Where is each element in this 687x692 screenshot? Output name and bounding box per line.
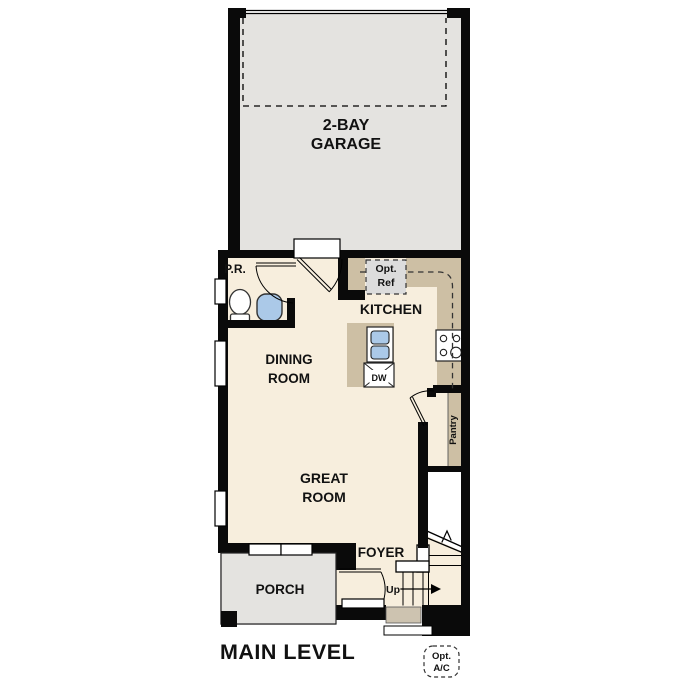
great-room-east-wall: [418, 422, 428, 548]
floor-plan-drawing: DW: [0, 0, 687, 687]
front-door-threshold: [342, 599, 384, 608]
kitchen-label: KITCHEN: [360, 301, 422, 317]
sink-basin-bottom-icon: [371, 346, 389, 359]
garage-door-niche: [294, 239, 340, 258]
kitchen-pantry-wall: [433, 385, 466, 393]
floor-plan-page: DW: [0, 0, 687, 687]
plan-title: MAIN LEVEL: [220, 640, 355, 664]
dishwasher-icon: DW: [364, 363, 394, 387]
pantry-label: Pantry: [448, 415, 459, 445]
opt-ac-label-line2: A/C: [433, 663, 450, 674]
drop-zone-cabinet: [348, 258, 365, 291]
entry-wall-horizontal: [338, 290, 365, 300]
stairs-up-label: Up: [386, 584, 400, 596]
opt-ref-label-line1: Opt.: [376, 263, 397, 275]
stair-rail-horizontal: [396, 561, 429, 572]
great-room-side-window: [215, 491, 226, 526]
great-room-label-line2: ROOM: [302, 489, 346, 505]
great-room-label-line1: GREAT: [300, 470, 348, 486]
front-stoop: [384, 626, 432, 635]
garage-bottom-wall: [218, 250, 470, 258]
great-room-front-window-1: [249, 544, 281, 555]
powder-room-bottom-wall: [218, 320, 295, 328]
opt-ac-unit: Opt. A/C: [424, 646, 459, 677]
great-room-front-window-2: [281, 544, 312, 555]
powder-room-window: [215, 279, 226, 304]
sink-basin-top-icon: [371, 331, 389, 344]
garage-top-left-jamb: [228, 8, 246, 18]
dining-window: [215, 341, 226, 386]
dishwasher-label: DW: [372, 373, 387, 383]
bathroom-sink-icon: [257, 294, 282, 321]
front-door-jamb-wall: [336, 543, 356, 570]
garage-left-wall: [228, 8, 240, 253]
pantry-door-jamb: [427, 388, 436, 397]
pantry-bottom-wall: [427, 466, 466, 472]
entry-step: [386, 607, 421, 623]
foyer-label: FOYER: [358, 545, 405, 560]
porch-post: [221, 611, 237, 627]
garage-label-line2: GARAGE: [311, 136, 382, 153]
opt-ref-label-line2: Ref: [378, 277, 395, 289]
cooktop-icon: [436, 330, 463, 361]
toilet-icon: [230, 290, 251, 315]
porch-label: PORCH: [256, 582, 305, 597]
garage-label-line1: 2-BAY: [323, 117, 370, 134]
right-wall: [461, 8, 470, 636]
powder-room-label: P.R.: [224, 262, 246, 276]
opt-ac-label-line1: Opt.: [432, 651, 451, 662]
dining-label-line2: ROOM: [268, 371, 310, 386]
dining-label-line1: DINING: [265, 352, 312, 367]
garage-top-right-jamb: [447, 8, 470, 18]
